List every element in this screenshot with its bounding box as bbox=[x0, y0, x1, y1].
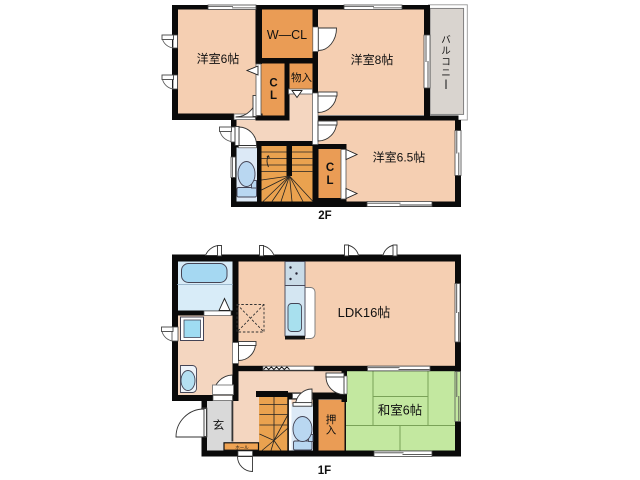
svg-text:和室6帖: 和室6帖 bbox=[378, 403, 422, 418]
svg-text:洋室8帖: 洋室8帖 bbox=[351, 52, 394, 67]
svg-text:洋室6.5帖: 洋室6.5帖 bbox=[373, 150, 426, 165]
svg-text:L: L bbox=[270, 90, 277, 102]
svg-text:LDK16帖: LDK16帖 bbox=[338, 305, 391, 320]
svg-text:1F: 1F bbox=[318, 465, 331, 477]
svg-text:入: 入 bbox=[326, 425, 337, 437]
svg-text:洋室6帖: 洋室6帖 bbox=[197, 51, 240, 66]
svg-text:ニ: ニ bbox=[441, 68, 451, 79]
svg-text:C: C bbox=[269, 78, 277, 90]
svg-text:2F: 2F bbox=[318, 210, 331, 222]
svg-text:玄: 玄 bbox=[213, 418, 225, 432]
svg-text:コ: コ bbox=[441, 57, 451, 68]
svg-text:ホール: ホール bbox=[235, 445, 249, 450]
svg-text:ル: ル bbox=[441, 46, 451, 57]
svg-text:W—CL: W—CL bbox=[267, 28, 307, 42]
svg-text:バ: バ bbox=[441, 35, 451, 46]
svg-text:C: C bbox=[326, 162, 334, 174]
svg-text:L: L bbox=[326, 175, 333, 187]
svg-text:物入: 物入 bbox=[291, 71, 312, 84]
